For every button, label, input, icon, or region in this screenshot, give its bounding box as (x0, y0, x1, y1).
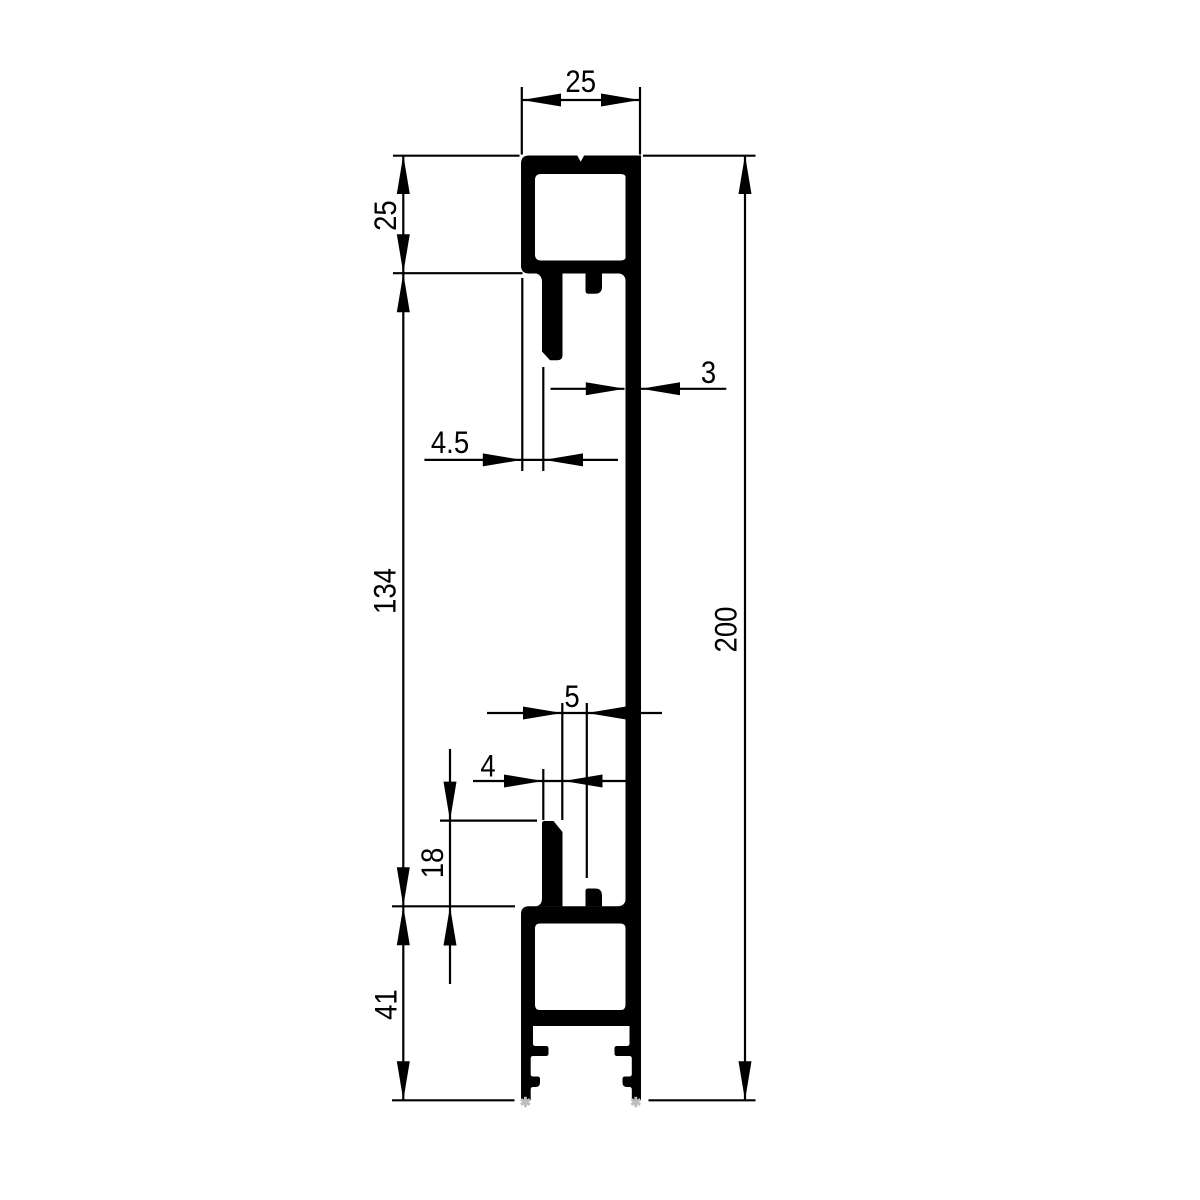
svg-text:3: 3 (701, 354, 716, 390)
svg-text:5: 5 (564, 678, 579, 714)
svg-text:18: 18 (414, 848, 450, 879)
svg-text:4.5: 4.5 (431, 424, 469, 460)
svg-text:25: 25 (565, 63, 596, 99)
svg-text:4: 4 (480, 748, 495, 784)
svg-text:134: 134 (367, 568, 403, 614)
svg-text:25: 25 (367, 200, 403, 231)
svg-text:41: 41 (368, 989, 404, 1020)
svg-text:200: 200 (708, 607, 744, 653)
